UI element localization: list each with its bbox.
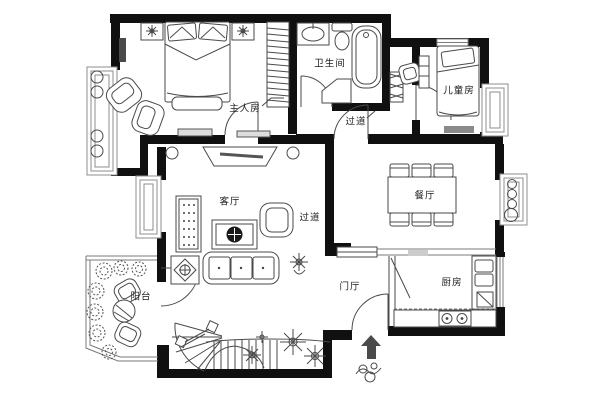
room-label-master-bedroom: 主人房 (229, 104, 261, 114)
balcony-items (86, 256, 158, 361)
mirror-cabinet (119, 38, 126, 62)
room-label-bathroom: 卫生间 (314, 59, 346, 69)
kitchen-window (495, 257, 506, 307)
room-label-dining-room: 餐厅 (414, 191, 435, 201)
kids-top-window (437, 39, 468, 46)
entry-hall-items (337, 247, 381, 382)
dresser (178, 129, 212, 136)
room-label-kitchen: 厨房 (441, 278, 462, 288)
hallway-furniture (390, 62, 422, 102)
wardrobe (267, 22, 289, 107)
counter-segment (408, 250, 428, 256)
appliance (477, 292, 493, 307)
speaker (166, 147, 178, 159)
decorative-figure (356, 363, 381, 382)
desk-shelf (444, 126, 474, 133)
sofa (203, 252, 279, 284)
tv-console (203, 147, 277, 166)
master-bay-window (87, 67, 117, 175)
coffee-table (212, 220, 257, 249)
stair-plants (243, 329, 326, 367)
bookshelf (419, 56, 429, 88)
floor-plant (290, 253, 308, 274)
room-label-entry-hall: 门厅 (339, 282, 360, 292)
newel-post (206, 321, 218, 333)
living-bay-window (136, 176, 161, 238)
room-label-hallway-upper: 过道 (345, 117, 366, 127)
floorplan: 主人房 卫生间 过道 儿童房 客厅 过道 餐厅 门厅 厨房 阳台 (0, 0, 600, 400)
kids-bay-window (482, 84, 508, 136)
shower-screen (322, 79, 351, 103)
sink-basin (475, 274, 493, 286)
sink-basin (475, 260, 493, 272)
entry-cabinet (337, 247, 377, 257)
toilet (332, 23, 352, 50)
dining-bay-window (500, 174, 527, 225)
entrance-door (352, 294, 388, 330)
balcony-chair (112, 320, 143, 349)
floorplan-drawing (0, 0, 600, 400)
cabinet (176, 196, 201, 252)
staircase (172, 321, 330, 371)
room-label-hallway-lower: 过道 (299, 213, 320, 223)
armchair (260, 203, 293, 237)
bathtub (352, 26, 381, 88)
dresser (237, 131, 270, 137)
speaker (287, 147, 299, 159)
kitchen-fixtures (351, 249, 496, 327)
room-label-kids-room: 儿童房 (443, 86, 475, 96)
room-label-living-room: 客厅 (219, 197, 240, 207)
stove (439, 311, 471, 326)
end-table (171, 256, 199, 284)
room-label-balcony: 阳台 (130, 292, 151, 302)
balcony-table (113, 300, 135, 322)
bed-bench (172, 97, 222, 110)
living-room-furniture (166, 147, 308, 284)
entrance-arrow-icon (361, 335, 381, 359)
